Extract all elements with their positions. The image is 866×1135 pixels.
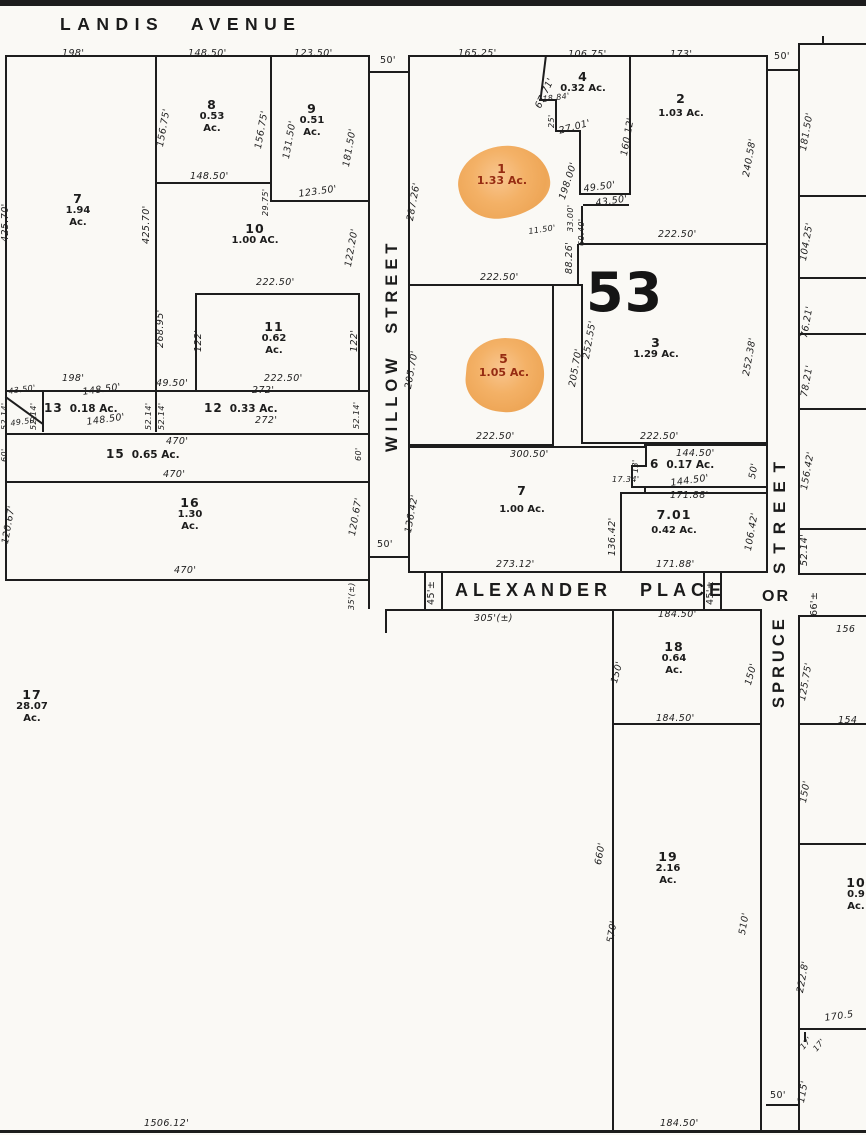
dim-label: 52.14' <box>353 401 361 429</box>
dim-label: 222.50' <box>256 278 295 288</box>
boundary-line <box>720 571 722 611</box>
dim-label: 60.40' <box>578 218 586 246</box>
street-edge-spruce-west-south <box>760 609 762 1130</box>
dim-label: 136.42' <box>608 517 618 556</box>
dim-label-street-width: 50' <box>380 56 396 66</box>
dim-label: 150' <box>799 780 812 804</box>
dim-label: 106.42' <box>744 512 760 552</box>
dim-label: 425.70' <box>142 205 152 244</box>
boundary-line <box>5 579 370 581</box>
dim-label: 17.34' <box>612 476 640 484</box>
dim-label: 660' <box>594 842 607 866</box>
dim-label: 156.75' <box>156 108 172 148</box>
dim-label: 154 <box>838 716 857 726</box>
dim-label: 205.70' <box>404 350 420 390</box>
dim-label: 252.55' <box>582 320 598 360</box>
dim-label: 13' <box>632 459 640 473</box>
boundary-line <box>155 182 272 184</box>
street-edge-spruce-west <box>766 55 768 573</box>
dim-label: 181.50' <box>342 128 358 168</box>
dim-label: 222.50' <box>476 432 515 442</box>
dim-label: 198' <box>62 49 84 59</box>
street-label-willow-street: WILLOW STREET <box>383 239 402 452</box>
dim-label: 470' <box>166 437 188 447</box>
boundary-line <box>798 277 866 279</box>
dim-label: 156 <box>836 625 855 635</box>
dim-label: 104.25' <box>799 222 815 262</box>
map-top-border <box>0 0 866 6</box>
dim-label: 60' <box>1 448 9 462</box>
boundary-line <box>579 130 581 195</box>
dim-label: 156.42' <box>800 451 816 491</box>
dim-label: 52.14' <box>30 402 38 430</box>
street-label-alexander-place: ALEXANDER PLACE <box>455 580 726 601</box>
boundary-line <box>270 200 370 202</box>
boundary-line <box>645 444 647 467</box>
boundary-line <box>577 244 579 286</box>
dim-label: 78.21' <box>800 364 815 397</box>
dim-label: 115' <box>797 1080 810 1104</box>
dim-label: 184.50' <box>658 610 697 620</box>
tax-map: LANDIS AVENUE WILLOW STREET ALEXANDER PL… <box>0 0 866 1135</box>
boundary-line <box>798 573 866 575</box>
dim-label: 148.50' <box>190 172 229 182</box>
dim-label: 27.01' <box>558 119 592 137</box>
dim-label: 122' <box>194 330 204 352</box>
lot-label-11: 11 0.62 Ac. <box>246 320 302 356</box>
dim-label: 43.50' <box>8 384 36 396</box>
boundary-line <box>798 195 866 197</box>
dim-label: 50' <box>748 462 760 479</box>
width-marker-line <box>369 556 408 558</box>
dim-label: 181.50' <box>799 112 815 152</box>
boundary-line <box>822 36 824 44</box>
boundary-line <box>620 492 622 573</box>
dim-label: 222.50' <box>640 432 679 442</box>
dim-label: 52.14' <box>145 402 153 430</box>
dim-label: 170.5 <box>824 1010 854 1023</box>
boundary-line <box>644 486 646 494</box>
street-edge-spruce-east <box>798 43 800 575</box>
dim-label: 60' <box>355 447 363 461</box>
dim-label: 156.75' <box>254 110 270 150</box>
boundary-line <box>5 390 370 392</box>
dim-label: 425.70' <box>1 203 11 242</box>
lot-label-6: 6 0.17 Ac. <box>650 458 714 471</box>
boundary-line <box>612 609 614 1130</box>
dim-label: 240.58' <box>742 138 758 178</box>
dim-label: 184.50' <box>656 714 695 724</box>
dim-label-street-width: 66'± <box>810 592 820 616</box>
boundary-line <box>270 55 272 202</box>
dim-label: 35'(±) <box>348 582 356 610</box>
dim-label: 123.50' <box>294 49 333 59</box>
street-edge-alexander-south <box>385 609 614 611</box>
boundary-line <box>579 243 768 245</box>
dim-label: 1506.12' <box>144 1119 189 1129</box>
dim-label: 144.50' <box>676 449 715 459</box>
street-label-spruce-word: SPRUCE <box>770 615 789 708</box>
block-number: 53 <box>586 266 663 320</box>
dim-label: 171.88' <box>656 560 695 570</box>
dim-label: 268.95' <box>156 309 166 348</box>
dim-label: 88.26' <box>565 242 575 274</box>
lot-label-4: 4 0.32 Ac. <box>552 70 614 95</box>
dim-label-street-width: 50' <box>377 540 393 550</box>
dim-label: 198' <box>62 374 84 384</box>
dim-label: 160.12' <box>620 117 636 157</box>
width-marker-line <box>369 71 408 73</box>
lot-label-18: 18 0.64 Ac. <box>648 640 700 676</box>
dim-label: 136.42' <box>404 494 420 534</box>
boundary-line <box>408 284 554 286</box>
boundary-line <box>5 433 370 435</box>
boundary-line <box>441 571 443 611</box>
street-label-landis-avenue: LANDIS AVENUE <box>60 14 301 35</box>
boundary-line <box>798 843 866 845</box>
dim-label: 17' <box>799 1036 814 1052</box>
boundary-line <box>798 528 866 530</box>
boundary-line <box>644 444 768 446</box>
dim-label: 252.38' <box>742 337 758 377</box>
dim-label: 25' <box>548 114 556 128</box>
dim-label: 125.75' <box>798 662 814 702</box>
boundary-line <box>408 446 646 448</box>
dim-label: 273.12' <box>496 560 535 570</box>
dim-label: 43.50' <box>595 195 628 209</box>
dim-label: 305'(±) <box>474 614 513 624</box>
dim-label: 120.67' <box>348 497 364 537</box>
dim-label: 49.50' <box>156 379 188 389</box>
lot-label-12: 12 0.33 Ac. <box>204 402 278 415</box>
boundary-line <box>631 486 768 488</box>
lot-label-16: 16 1.30 Ac. <box>162 496 218 532</box>
boundary-line <box>385 609 387 633</box>
map-bottom-border <box>0 1130 866 1133</box>
dim-label: 122' <box>350 330 360 352</box>
dim-label: 52.14' <box>800 534 810 566</box>
lot-label-7-01: 7.01 0.42 Ac. <box>634 508 714 537</box>
dim-label: 150' <box>744 662 759 686</box>
dim-label: 173' <box>670 50 692 60</box>
dim-label: 148.50' <box>188 49 227 59</box>
boundary-line <box>798 43 866 45</box>
street-edge-willow-west <box>368 55 370 609</box>
lot-label-8: 8 0.53 Ac. <box>186 98 238 134</box>
lot-label-10: 10 1.00 AC. <box>218 222 292 247</box>
dim-label: 272' <box>255 416 277 426</box>
dim-label: 33.00' <box>567 204 575 232</box>
dim-label: 17' <box>812 1038 827 1054</box>
lot-label-7-east: 7 1.00 Ac. <box>482 484 562 516</box>
dim-label: 106.75' <box>568 50 607 60</box>
dim-label-street-width: 45'± <box>706 581 716 605</box>
dim-label: 171.88' <box>670 491 709 501</box>
dim-label: 222.50' <box>480 273 519 283</box>
dim-label: 198.00' <box>558 161 579 201</box>
boundary-line <box>798 408 866 410</box>
dim-label: 222.50' <box>264 374 303 384</box>
boundary-line <box>5 55 7 581</box>
dim-label-street-width: 50' <box>774 52 790 62</box>
dim-label: 131.50' <box>282 120 298 160</box>
dim-label: 11.50' <box>528 224 556 236</box>
boundary-line <box>5 481 370 483</box>
lot-label-10-east: 10 0.9 Ac. <box>834 876 866 912</box>
dim-label: 510' <box>738 912 751 936</box>
street-label-or: OR <box>762 588 790 606</box>
lot-label-2: 2 1.03 Ac. <box>644 92 718 120</box>
width-marker-line <box>766 1104 799 1106</box>
dim-label: 120.67' <box>1 505 17 545</box>
dim-label: 470' <box>163 470 185 480</box>
dim-label-street-width: 45'± <box>427 581 437 605</box>
lot-label-7-west: 7 1.94 Ac. <box>50 192 106 228</box>
dim-label: 123.50' <box>298 185 338 200</box>
lot-label-1: 1 1.33 Ac. <box>460 162 544 188</box>
boundary-line <box>552 284 554 446</box>
dim-label: 470' <box>174 566 196 576</box>
dim-label: 148.50' <box>82 383 122 398</box>
boundary-line <box>552 284 582 286</box>
width-marker-line <box>768 69 799 71</box>
dim-label: 184.50' <box>660 1119 699 1129</box>
dim-label: 300.50' <box>510 450 549 460</box>
dim-label: 570' <box>606 920 619 944</box>
dim-label-street-width: 50' <box>770 1091 786 1101</box>
dim-label: 122.20' <box>344 228 360 268</box>
lot-label-3: 3 1.29 Ac. <box>618 336 694 361</box>
lot-label-5: 5 1.05 Ac. <box>462 352 546 380</box>
dim-label: 52.14' <box>158 402 166 430</box>
lot-label-15: 15 0.65 Ac. <box>106 448 180 461</box>
street-edge-alexander-north <box>408 571 768 573</box>
dim-label: 272' <box>252 386 274 396</box>
street-label-spruce-street-word: STREET <box>770 453 790 574</box>
lot-label-17: 17 28.07 Ac. <box>0 688 64 724</box>
boundary-line <box>195 293 360 295</box>
lot-label-19: 19 2.16 Ac. <box>642 850 694 886</box>
boundary-line <box>798 1028 866 1030</box>
dim-label: 165.25' <box>458 49 497 59</box>
dim-label: 222.50' <box>658 230 697 240</box>
dim-label: 29.75' <box>262 188 270 216</box>
dim-label: 52.14' <box>1 402 9 430</box>
